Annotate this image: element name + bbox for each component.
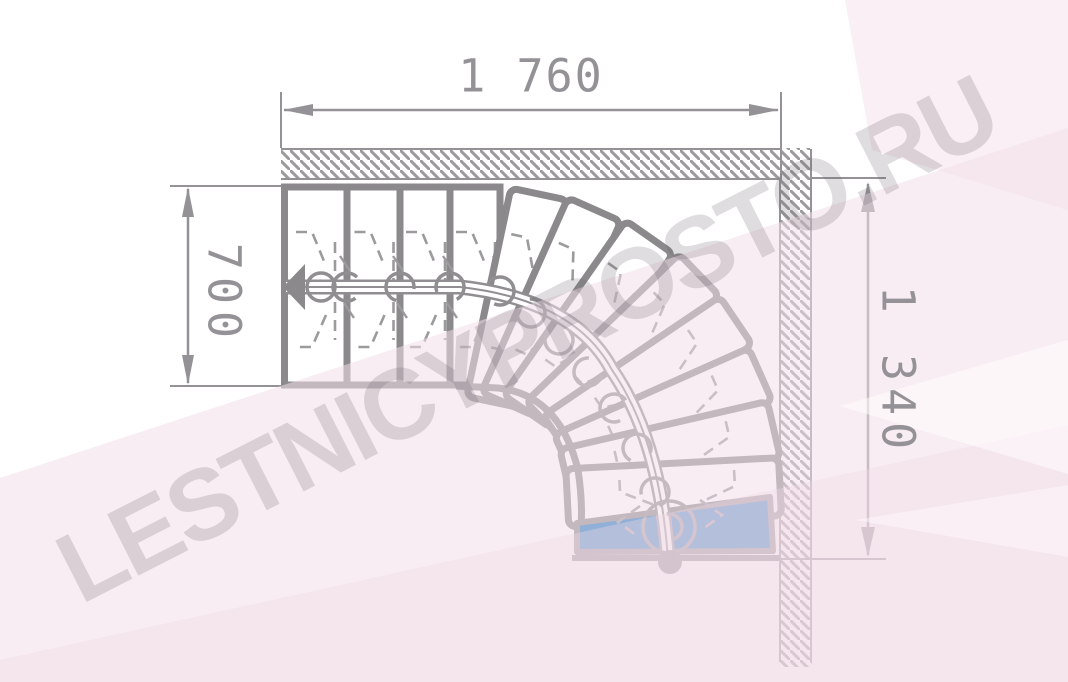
dimension-label-right: 1 340: [876, 286, 921, 456]
stair-plan-drawing: LESTNICYPROSTO.RU 1 760 700 1 340: [0, 0, 1068, 682]
dimension-label-left: 700: [202, 243, 247, 345]
arrowhead-down-icon: [182, 355, 194, 385]
arrowhead-up-icon: [182, 187, 194, 217]
arrowhead-right-icon: [749, 104, 779, 116]
arrowhead-left-icon: [283, 104, 313, 116]
dimension-label-top: 1 760: [458, 54, 603, 99]
